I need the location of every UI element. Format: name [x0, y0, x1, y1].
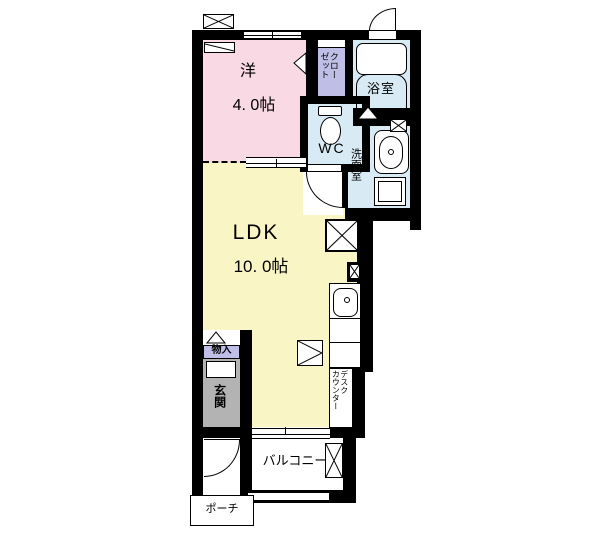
pipe-space-icon — [347, 262, 362, 282]
wall — [306, 40, 318, 98]
window-icon — [244, 31, 301, 39]
bathtub-icon — [356, 43, 407, 75]
front-door-swing-icon — [204, 440, 240, 477]
wall-shelf-icon — [204, 42, 235, 53]
wc-label: WC — [310, 141, 354, 156]
closet-label-line1: クロー — [328, 52, 337, 98]
closet-folding-door-icon — [293, 52, 307, 75]
ldk-size: 10. 0帖 — [208, 258, 314, 276]
side-window-icon — [390, 119, 407, 132]
entry-door-opening — [369, 31, 396, 39]
closet-top-track — [318, 40, 345, 48]
vent-window-icon — [203, 14, 234, 29]
wall — [343, 170, 348, 208]
refrigerator-space-icon — [325, 219, 359, 252]
balcony-window-icon — [252, 428, 330, 439]
porch-label: ポーチ — [195, 504, 249, 516]
wall — [330, 427, 347, 438]
washroom-door-leaf — [342, 172, 343, 208]
kitchen-counter-divider — [329, 342, 361, 343]
sliding-door-tick — [276, 159, 277, 167]
ldk-name: LDK — [225, 222, 287, 244]
entry-door-leaf — [395, 8, 396, 31]
western-room-size: 4. 0帖 — [208, 98, 300, 115]
wall — [192, 427, 252, 438]
kitchen-faucet-icon — [344, 297, 350, 303]
wall — [240, 330, 252, 430]
desk-counter-label: デスク カウンター — [331, 370, 348, 426]
kitchen-counter-divider — [329, 318, 361, 319]
toilet-tank-icon — [318, 106, 342, 116]
bath-folding-door-icon — [357, 106, 379, 120]
floor-plan: 洋 4. 0帖 LDK 10. 0帖 WC 浴室 洗面室 クロー ゼット 物入 … — [0, 0, 610, 543]
desk-counter-label-line2: カウンター — [331, 370, 339, 426]
wc-door-opening — [308, 165, 341, 171]
balcony-label: バルコニー — [248, 454, 342, 468]
window-glass-line — [252, 434, 330, 435]
washroom-label: 洗面室 — [349, 148, 361, 210]
wall — [345, 40, 353, 98]
room-divider-dashed-line — [203, 161, 246, 163]
closet-label: クロー ゼット — [319, 52, 338, 98]
storage-folding-door-icon — [206, 331, 226, 344]
vanity-faucet-icon — [388, 149, 394, 155]
closet-label-line2: ゼット — [319, 52, 328, 98]
wall — [410, 40, 421, 230]
wall — [360, 283, 373, 368]
shoe-cabinet — [206, 361, 236, 378]
entry-door-swing-icon — [369, 8, 396, 31]
entrance-label: 玄関 — [213, 384, 226, 420]
window-center-tick — [272, 30, 273, 38]
desk-counter-label-line1: デスク — [339, 370, 347, 426]
storage-label: 物入 — [203, 346, 240, 357]
western-room-name: 洋 — [228, 64, 268, 81]
balcony-step — [247, 492, 330, 501]
louver-box-icon — [297, 340, 323, 366]
window-center-tick — [285, 427, 286, 435]
sliding-door-icon — [246, 157, 306, 168]
washer-space-inner — [378, 181, 402, 202]
wall — [352, 368, 365, 428]
bath-label: 浴室 — [356, 82, 406, 96]
